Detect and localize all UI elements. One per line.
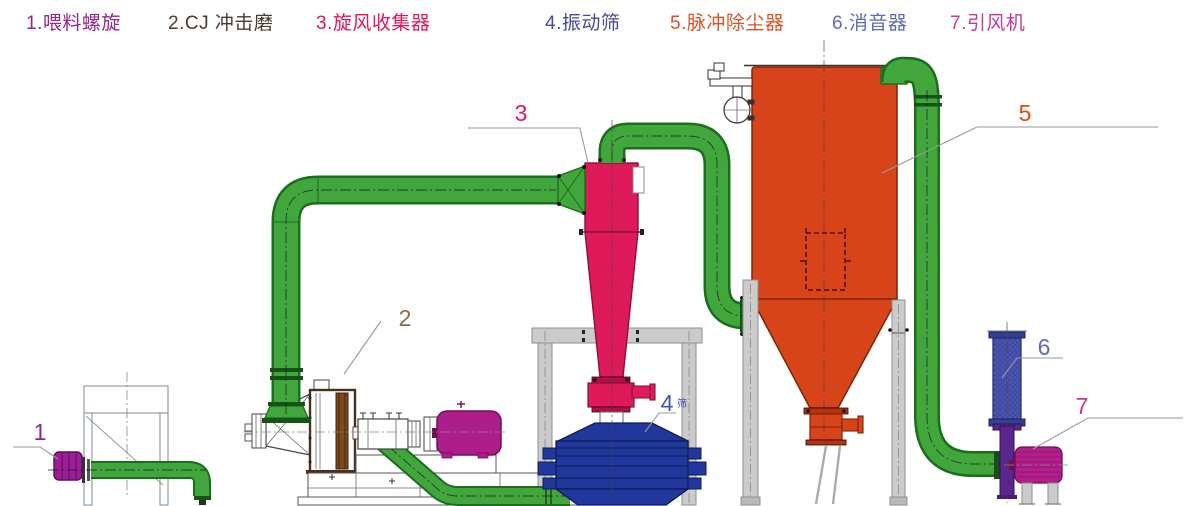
diagram-canvas: 1 2 3 4 筛 5 6 7: [0, 0, 1189, 506]
callout-2: 2: [399, 305, 412, 331]
process-flow-diagram: 1 2 3 4 筛 5 6 7 1.喂料螺旋 2.CJ 冲击磨 3.旋风收集器 …: [0, 0, 1189, 506]
pulse-dust-collector: [744, 66, 906, 505]
callout-4: 4: [661, 390, 674, 416]
callout-7: 7: [1076, 393, 1089, 419]
pulse-valve-assembly: [708, 63, 754, 123]
vibrating-screen: [538, 423, 706, 505]
callout-5: 5: [1019, 100, 1032, 126]
legend-item-vibrating-screen: 4.振动筛: [545, 8, 620, 35]
legend-item-muffler: 6.消音器: [832, 8, 907, 35]
legend-item-feed-screw: 1.喂料螺旋: [26, 8, 121, 35]
feed-screw: [48, 452, 211, 505]
callout-1: 1: [34, 419, 47, 445]
callout-6: 6: [1038, 334, 1051, 360]
callout-3: 3: [515, 100, 528, 126]
legend-item-impact-mill: 2.CJ 冲击磨: [168, 8, 273, 35]
callout-4-suffix: 筛: [677, 397, 687, 410]
legend-item-fan: 7.引风机: [950, 8, 1025, 35]
cyclone-collector: [579, 163, 655, 424]
feed-hopper: [84, 372, 168, 505]
legend-item-dust-collector: 5.脉冲除尘器: [670, 8, 784, 35]
pipe-mill-to-cyclone: [262, 165, 586, 423]
legend-item-cyclone: 3.旋风收集器: [316, 8, 430, 35]
feed-screw-motor: [54, 452, 82, 480]
mill-motor: [437, 411, 501, 455]
